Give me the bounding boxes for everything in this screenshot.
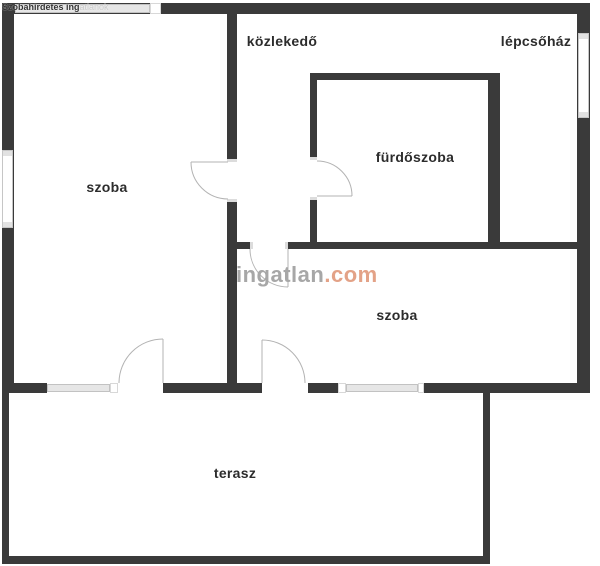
- top-left-watermark-secondary: atlanok: [80, 2, 109, 12]
- top-left-watermark: Szobahirdetes ingatlanok: [2, 2, 109, 12]
- room-label-bathroom: fürdőszoba: [376, 149, 454, 165]
- ingatlan-watermark-suffix: .com: [324, 262, 377, 287]
- ingatlan-watermark-brand: ingatlan: [236, 262, 324, 287]
- top-left-watermark-primary: Szobahirdetes ing: [2, 2, 80, 12]
- door-arc-terrace-right: [262, 340, 305, 383]
- room-label-room-right: szoba: [376, 307, 417, 323]
- room-label-staircase: lépcsőház: [501, 33, 571, 49]
- floor-plan: közlekedő lépcsőház fürdőszoba szoba szo…: [0, 0, 600, 566]
- door-arc-bathroom: [317, 161, 352, 196]
- door-arc-left-room: [191, 162, 228, 199]
- door-arc-terrace-left: [119, 339, 163, 383]
- room-label-terrace: terasz: [214, 465, 256, 481]
- room-label-room-left: szoba: [86, 179, 127, 195]
- ingatlan-watermark: ingatlan.com: [236, 262, 378, 288]
- room-label-hallway: közlekedő: [247, 33, 317, 49]
